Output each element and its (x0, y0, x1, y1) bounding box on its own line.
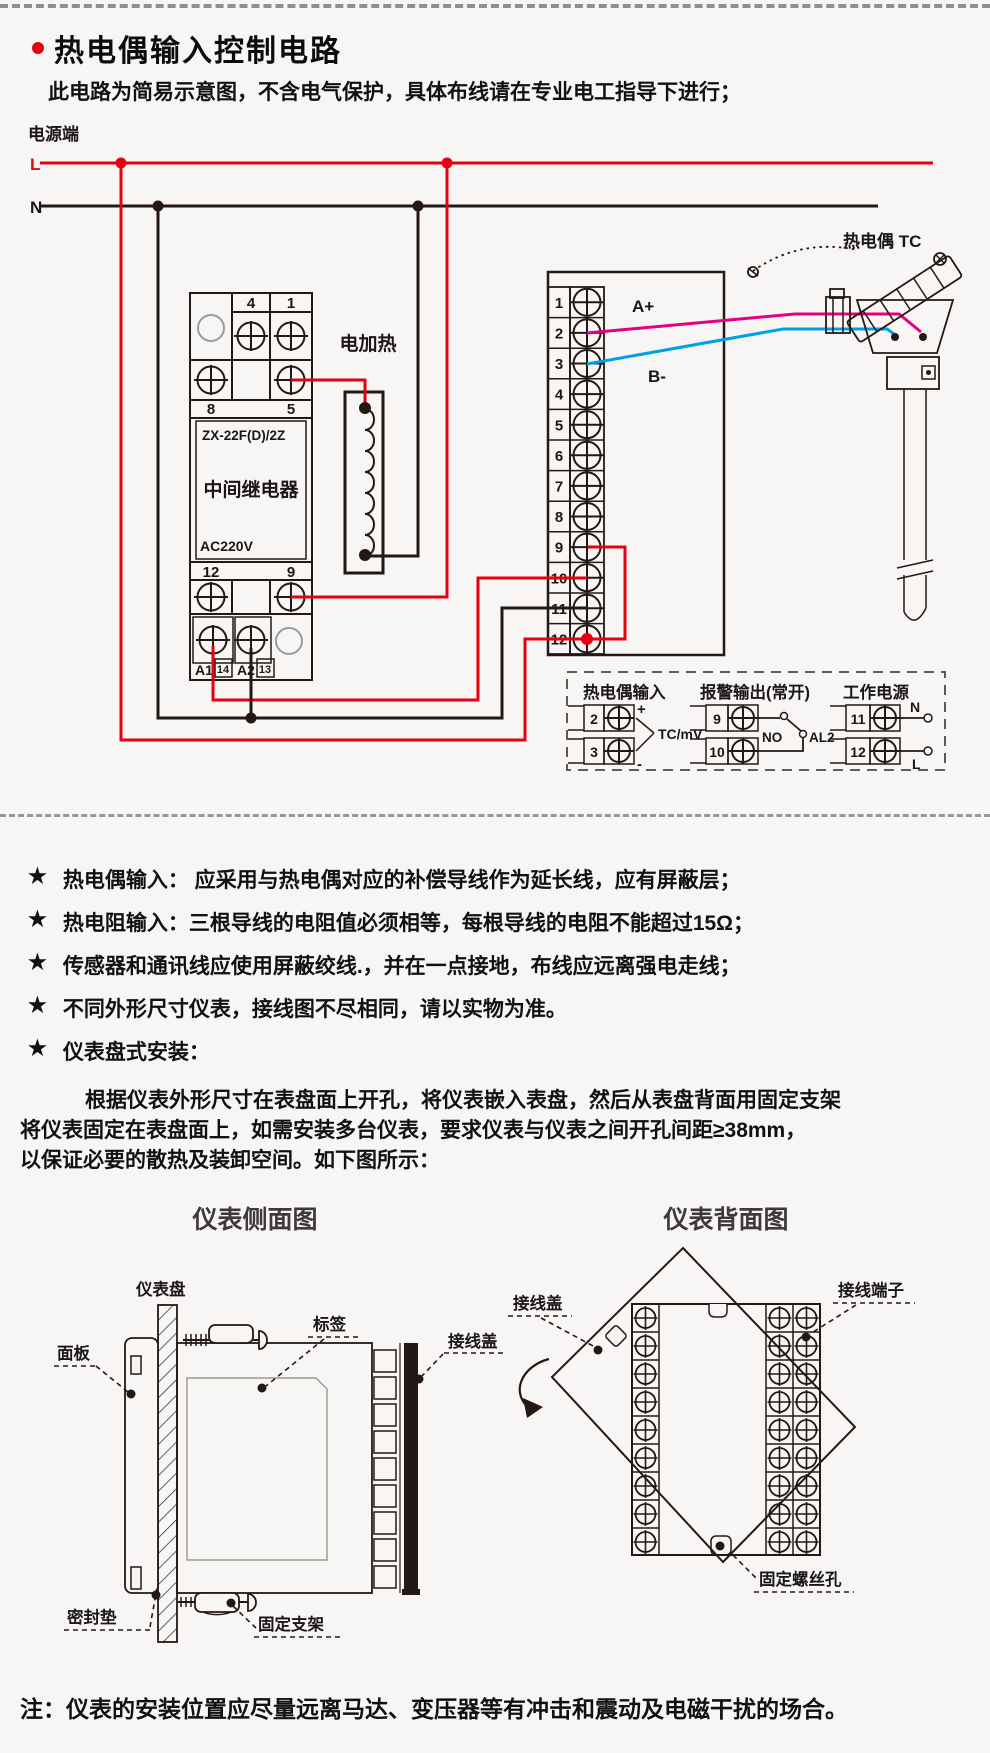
legend-terminal-12: 12 (850, 744, 866, 760)
tag-area (187, 1378, 327, 1560)
relay-terminal-12: 12 (203, 564, 220, 581)
power-terminal-label: 电源端 (28, 124, 79, 144)
panel-label: 仪表盘 (135, 1279, 186, 1299)
note-text: 热电偶输入： 应采用与热电偶对应的补偿导线作为延长线，应有屏蔽层； (63, 864, 741, 894)
instrument-body-side (177, 1343, 372, 1593)
terminal-label-back: 接线端子 (838, 1280, 905, 1300)
bottom-bracket-screw (178, 1593, 256, 1615)
legend-no-label: NO (762, 730, 782, 745)
relay-terminal-14: 14 (217, 664, 230, 676)
relay-terminal-1: 1 (287, 295, 295, 312)
note-text: 仪表盘式安装： (63, 1036, 210, 1066)
star-icon: ★ (28, 864, 47, 889)
footnote: 注：仪表的安装位置应尽量远离马达、变压器等有冲击和震动及电磁干扰的场合。 (20, 1690, 848, 1724)
relay-terminal-5: 5 (287, 401, 295, 418)
terminal-number: 4 (555, 387, 564, 404)
back-view-diagram: 接线盖 接线端子 固定螺丝孔 (508, 1248, 915, 1592)
relay-model: ZX-22F(D)/2Z (202, 428, 285, 443)
legend-n-label: N (910, 699, 920, 715)
terminal-number: 9 (555, 540, 563, 557)
legend-alarm-title: 报警输出(常开) (700, 682, 810, 702)
thermocouple-b-wire (587, 329, 894, 364)
legend-power-title: 工作电源 (843, 682, 910, 702)
note-text: 传感器和通讯线应使用屏蔽绞线.，并在一点接地，布线应远离强电走线； (63, 950, 741, 980)
relay-terminal-13: 13 (259, 664, 271, 676)
screw-hole-label: 固定螺丝孔 (759, 1569, 842, 1589)
note-line: ★ 传感器和通讯线应使用屏蔽绞线.，并在一点接地，布线应远离强电走线； (28, 950, 741, 980)
side-view-diagram: 仪表盘 (54, 1279, 504, 1642)
note-line: ★ 热电偶输入： 应采用与热电偶对应的补偿导线作为延长线，应有屏蔽层； (28, 864, 741, 894)
junction-dots (116, 158, 594, 724)
note-line: ★ 仪表盘式安装： (28, 1036, 210, 1066)
legend-al2-label: AL2 (809, 730, 835, 745)
front-bezel (125, 1338, 158, 1593)
relay-voltage: AC220V (200, 538, 254, 554)
legend-l-label: L (912, 756, 921, 772)
rotation-arrowhead (523, 1398, 543, 1418)
bracket-label: 固定支架 (258, 1614, 325, 1634)
heater-label: 电加热 (339, 332, 396, 355)
legend-terminal-2: 2 (590, 711, 598, 727)
relay-name: 中间继电器 (203, 478, 299, 501)
tag-label: 标签 (313, 1314, 347, 1334)
relay-mount-hole (198, 315, 224, 341)
terminal-number: 6 (555, 448, 563, 465)
gasket-label: 密封垫 (67, 1607, 117, 1627)
thermocouple-head (857, 300, 953, 353)
terminal-number: 5 (555, 417, 563, 434)
power-rails: 电源端 L N (28, 124, 933, 217)
neutral-to-heater-wire (365, 206, 418, 556)
terminal-number: 2 (555, 326, 563, 343)
wire-b-label: B- (648, 367, 666, 386)
instrument-back-body (632, 1304, 820, 1555)
relay-mount-hole (276, 628, 302, 654)
terminal-number: 8 (555, 509, 563, 526)
legend-terminal-3: 3 (590, 744, 598, 760)
mounting-panel-wall (158, 1305, 177, 1642)
heater-element: 电加热 (339, 332, 396, 573)
relay-module: 4 1 8 5 ZX-22F(D)/2Z 中间继电器 AC220V 12 9 A… (190, 293, 312, 680)
legend-plus: + (637, 701, 646, 718)
relay-terminal-4: 4 (247, 295, 256, 312)
side-view-title: 仪表侧面图 (145, 1200, 365, 1236)
line-l-label: L (30, 155, 40, 174)
cover-label-side: 接线盖 (448, 1331, 498, 1351)
thermocouple: 热电偶 TC (748, 231, 962, 620)
legend-tc-input-title: 热电偶输入 (583, 682, 666, 702)
terminal-cover-side (374, 1343, 420, 1595)
note-text: 热电阻输入：三根导线的电阻值必须相等，每根导线的电阻不能超过15Ω； (63, 907, 754, 937)
cover-screw-slot (605, 1325, 628, 1348)
front-panel-label: 面板 (57, 1343, 91, 1363)
install-paragraph-line: 将仪表固定在表盘面上，如需安装多台仪表，要求仪表与仪表之间开孔间距≥38mm， (20, 1114, 806, 1144)
top-bracket-screw (183, 1325, 267, 1349)
relay-terminal-8: 8 (207, 401, 215, 418)
terminal-number: 1 (555, 295, 563, 312)
note-line: ★ 热电阻输入：三根导线的电阻值必须相等，每根导线的电阻不能超过15Ω； (28, 907, 754, 937)
star-icon: ★ (28, 1036, 47, 1061)
heater-coil (365, 409, 374, 556)
install-paragraph-line: 以保证必要的散热及装卸空间。如下图所示： (20, 1144, 440, 1174)
wire-a-label: A+ (632, 297, 654, 316)
legend-terminal-9: 9 (713, 711, 721, 727)
legend-terminal-10: 10 (709, 744, 725, 760)
install-paragraph-line: 根据仪表外形尺寸在表盘面上开孔，将仪表嵌入表盘，然后从表盘背面用固定支架 (85, 1084, 841, 1114)
legend-minus: - (637, 756, 642, 773)
legend-terminal-11: 11 (851, 711, 866, 727)
manual-page: 热电偶输入控制电路 此电路为简易示意图，不含电气保护，具体布线请在专业电工指导下… (0, 0, 990, 1753)
relay-terminal-9: 9 (287, 564, 295, 581)
cover-label-back: 接线盖 (513, 1293, 563, 1313)
terminal-number: 3 (555, 356, 563, 373)
note-line: ★ 不同外形尺寸仪表，接线图不尽相同，请以实物为准。 (28, 993, 567, 1023)
thermocouple-label: 热电偶 TC (843, 231, 921, 251)
section-dashed-divider (0, 814, 990, 817)
star-icon: ★ (28, 950, 47, 975)
back-view-title: 仪表背面图 (616, 1200, 836, 1236)
star-icon: ★ (28, 907, 47, 932)
thermocouple-probe (897, 389, 933, 620)
top-notch (709, 1304, 727, 1317)
star-icon: ★ (28, 993, 47, 1018)
note-text: 不同外形尺寸仪表，接线图不尽相同，请以实物为准。 (63, 993, 567, 1023)
terminal-legend: 热电偶输入 2 3 + - TC/mV 报警输出(常开) 9 10 NO AL2 (567, 672, 945, 773)
terminal-number: 7 (555, 479, 563, 496)
relay-terminal-a1: A1 (195, 662, 213, 678)
